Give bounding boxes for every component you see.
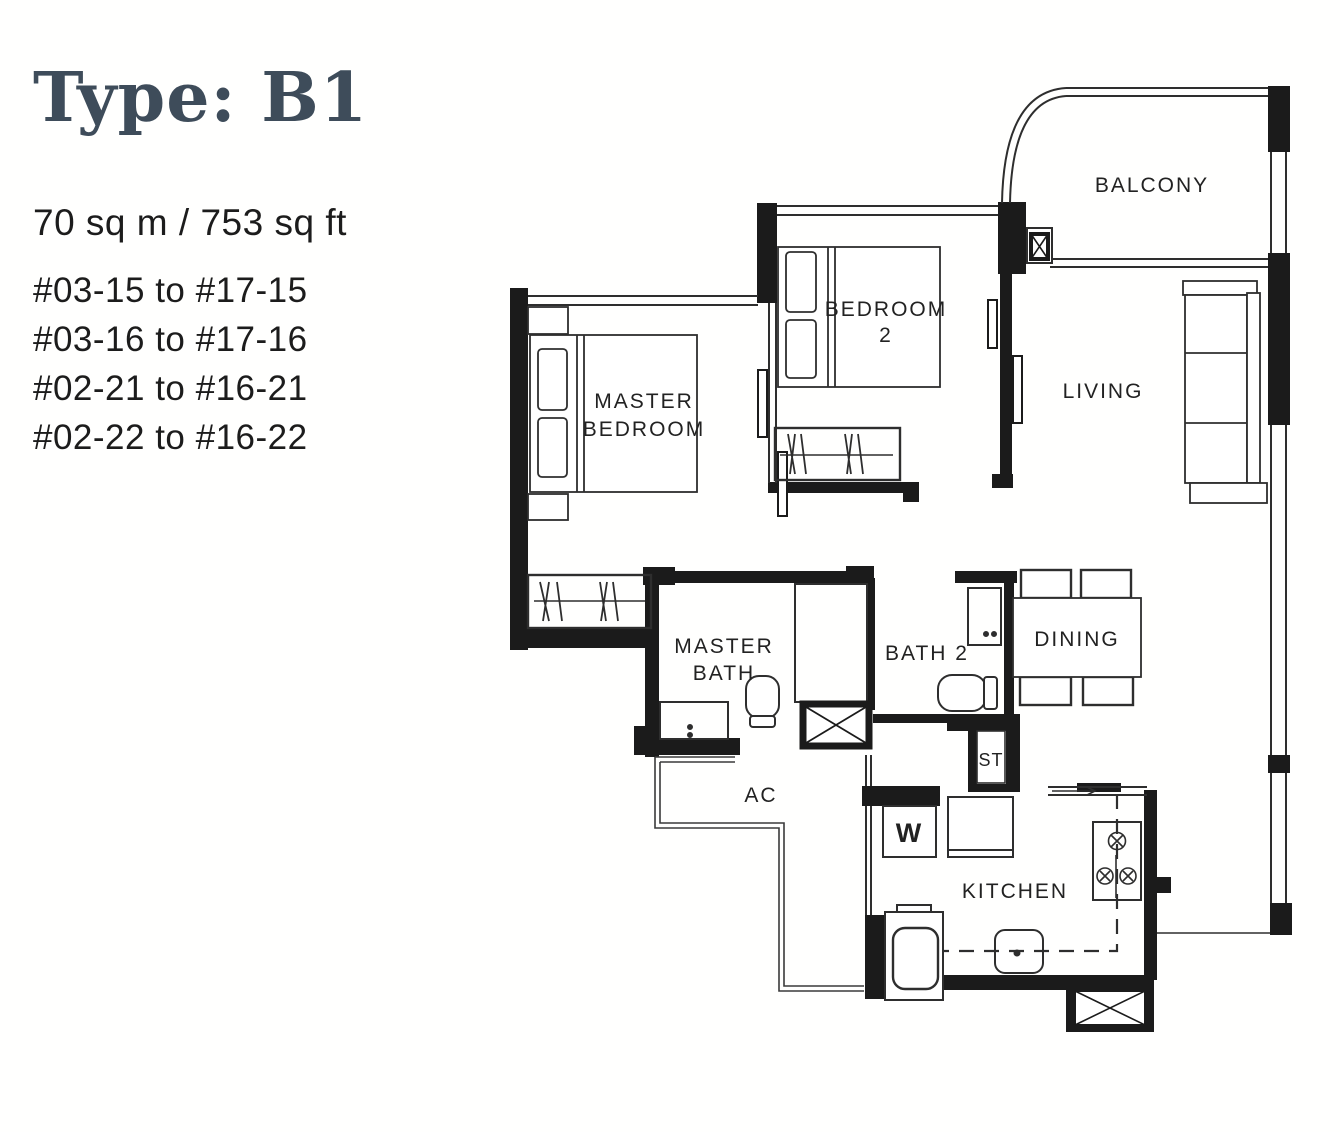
label-master-bedroom-1: MASTER [594, 390, 694, 413]
dining-chair [1020, 677, 1071, 705]
bath2-shower [968, 588, 1001, 645]
wall-bedroom2-living [1000, 274, 1012, 478]
wall-bedroom2-living-foot [992, 474, 1013, 488]
window-balcony-bottom [1050, 259, 1268, 267]
wall-bedroom2-jamb [757, 203, 777, 303]
kitchen-ac-ledge-box [1066, 975, 1154, 1032]
label-living: LIVING [1063, 380, 1144, 403]
balcony-column-shaft [1027, 228, 1052, 263]
floor-plan-drawing: BALCONY BEDROOM 2 LIVING MASTER BEDROOM … [0, 0, 1340, 1132]
wall-st-bottom [968, 784, 1018, 792]
label-ac-ledge: AC [744, 784, 777, 807]
wall-right-joint [1268, 755, 1290, 773]
bedroom2-wardrobe [775, 428, 900, 480]
wall-right-mid-block [1268, 253, 1290, 425]
door-panel-master-1 [758, 370, 767, 437]
wall-kitchen-bottom [940, 975, 1070, 990]
dining-chair [1083, 677, 1133, 705]
fridge-box [948, 797, 1013, 857]
wall-bath2-bottom [873, 714, 1005, 723]
door-panel-master-2 [778, 452, 787, 516]
label-storage: ST [978, 750, 1003, 770]
label-master-bath-2: BATH [693, 662, 755, 685]
kitchen-sink [885, 905, 943, 1000]
entry-arrow-icon [1052, 787, 1095, 795]
dining-chair [1021, 570, 1071, 598]
window-balcony-top [1066, 88, 1268, 96]
label-bedroom2: BEDROOM [825, 298, 948, 321]
label-balcony: BALCONY [1095, 174, 1209, 197]
wall-washer-top [862, 786, 940, 806]
window-right-1 [1271, 152, 1286, 253]
window-right-2 [1271, 425, 1286, 755]
label-bath2: BATH 2 [885, 642, 969, 665]
wall-kitchen-right [1144, 790, 1157, 980]
label-kitchen: KITCHEN [962, 880, 1068, 903]
label-washer: W [896, 818, 922, 848]
wall-kitchen-stub [1157, 877, 1171, 893]
floor-plan-page: Type: B1 70 sq m / 753 sq ft #03-15 to #… [0, 0, 1340, 1132]
bath2-toilet [938, 675, 997, 711]
wall-st-top [947, 722, 1017, 731]
wall-master-bottom [510, 628, 656, 648]
master-wardrobe [528, 575, 651, 628]
wall-kitchen-sink-left [865, 915, 885, 999]
wall-masterbath-bottom-block [634, 726, 660, 755]
window-bedroom2-top [777, 206, 998, 215]
wall-masterbath-top [648, 571, 870, 583]
master-bed [528, 307, 697, 520]
sofa [1183, 281, 1267, 503]
masterbath-shower-box [795, 584, 869, 746]
walls [510, 86, 1292, 999]
wall-right-foot [1270, 903, 1292, 935]
label-master-bath-1: MASTER [674, 635, 774, 658]
dining-chair [1081, 570, 1131, 598]
label-bedroom2-number: 2 [879, 324, 893, 347]
door-panel-bedroom2 [988, 300, 997, 348]
wall-balcony-left-block [1002, 203, 1026, 273]
wall-bedroom2-bottom-step [903, 482, 919, 502]
label-dining: DINING [1034, 628, 1120, 651]
wall-st-left [968, 722, 977, 790]
door-panel-living [1013, 356, 1022, 423]
window-right-3 [1271, 773, 1286, 903]
masterbath-sink [660, 702, 728, 739]
wall-right-top-block [1268, 86, 1290, 152]
label-master-bedroom-2: BEDROOM [583, 418, 706, 441]
window-balcony-curve [1002, 88, 1066, 203]
window-master-top [528, 296, 758, 305]
wall-corridor-left [866, 755, 871, 915]
wall-bedroom2-bottom [768, 482, 918, 493]
wall-master-left [510, 288, 528, 650]
